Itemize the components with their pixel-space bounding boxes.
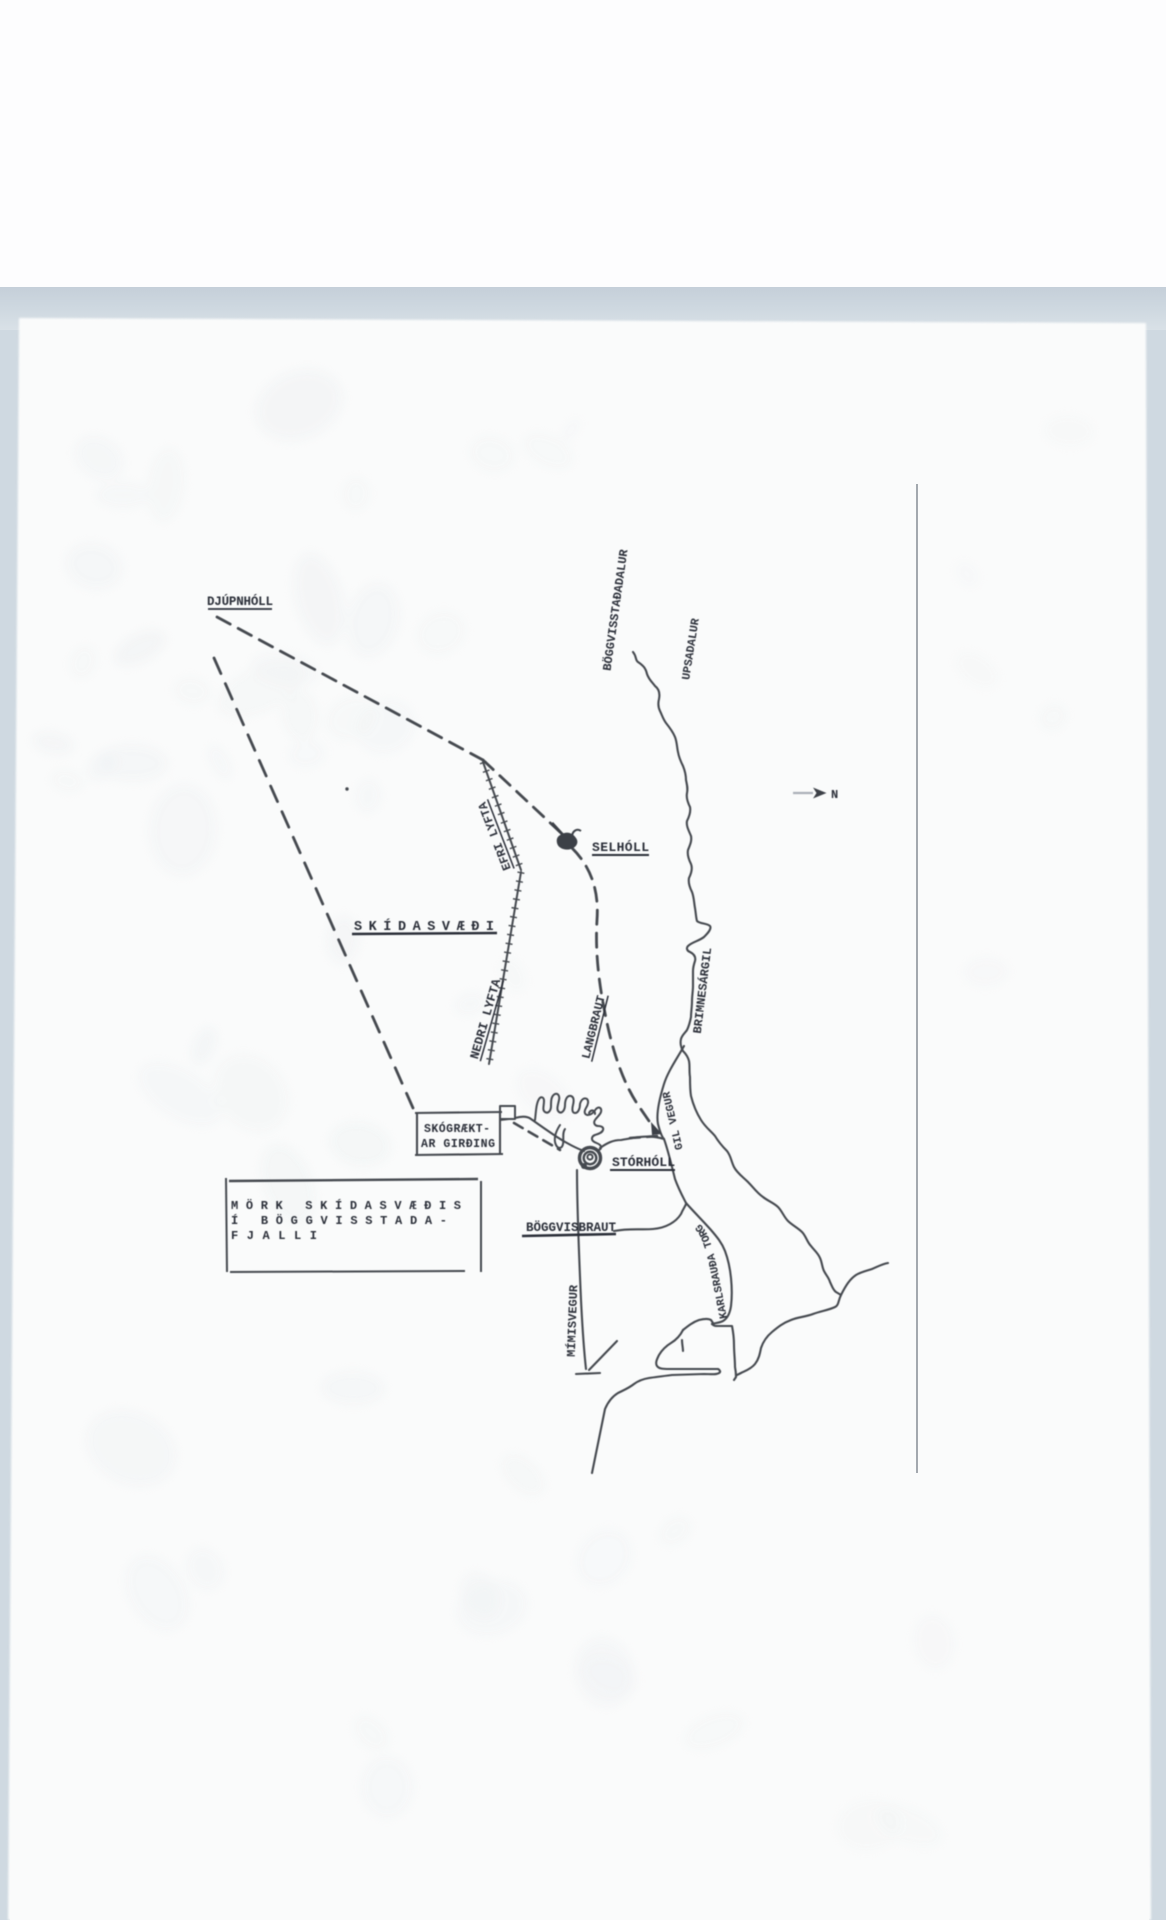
svg-text:N: N: [831, 788, 838, 802]
svg-text:MÍMISVEGUR: MÍMISVEGUR: [564, 1284, 582, 1357]
svg-text:DJÚPNHÓLL: DJÚPNHÓLL: [207, 594, 273, 609]
svg-text:AR GIRÐING: AR GIRÐING: [421, 1138, 495, 1151]
svg-text:BÖGGVISBRAUT: BÖGGVISBRAUT: [526, 1219, 616, 1235]
svg-text:Í BÖGGVISSTADA-: Í BÖGGVISSTADA-: [231, 1212, 447, 1228]
svg-text:SKÓGRÆKT-: SKÓGRÆKT-: [424, 1122, 490, 1136]
svg-text:SELHÓLL: SELHÓLL: [592, 840, 649, 855]
svg-text:STÓRHÓLL: STÓRHÓLL: [612, 1155, 675, 1170]
